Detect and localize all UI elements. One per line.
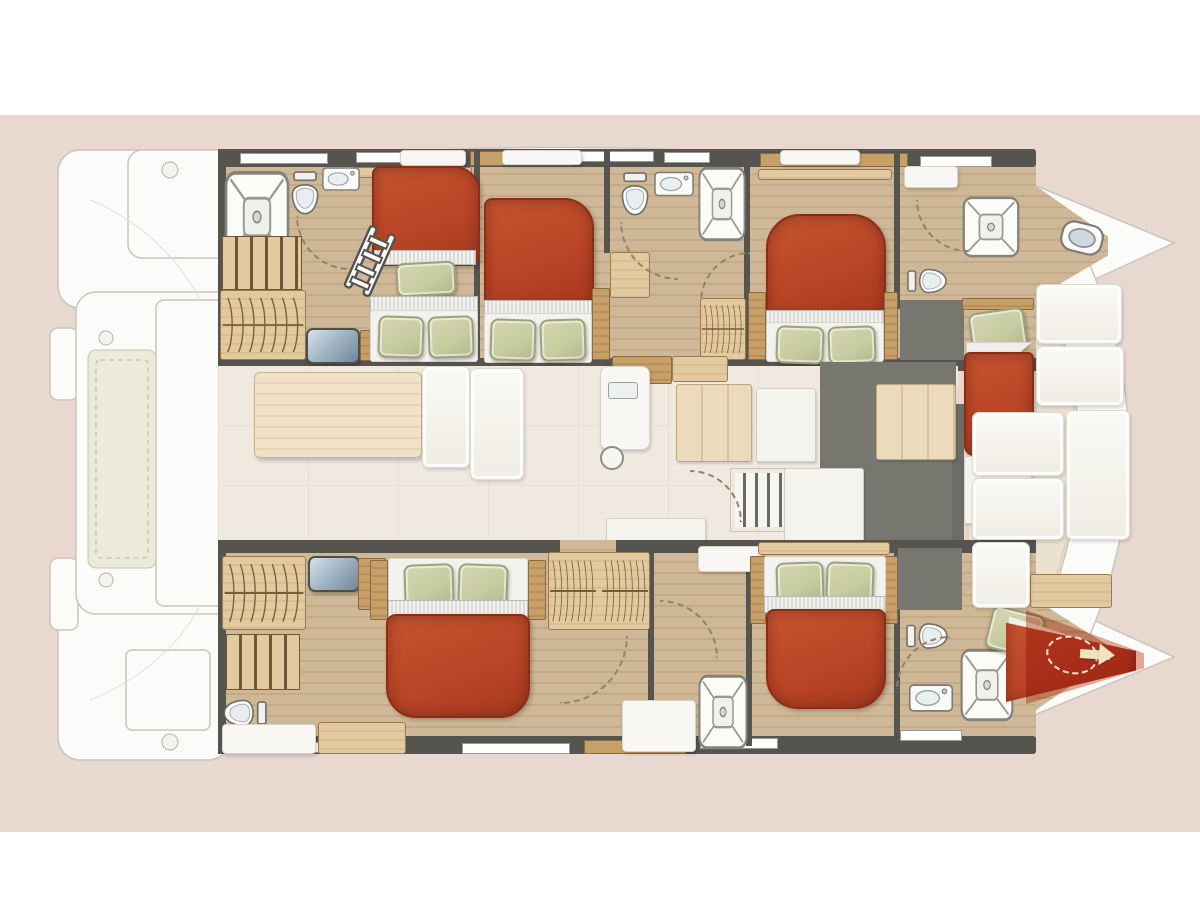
bulkhead bbox=[604, 149, 610, 253]
deck-hatch bbox=[780, 150, 860, 165]
pillow bbox=[377, 315, 424, 359]
staircase bbox=[226, 634, 300, 690]
pillow bbox=[827, 325, 876, 365]
double-bed bbox=[484, 198, 594, 308]
island-sink bbox=[608, 382, 638, 399]
dining-table bbox=[254, 372, 422, 458]
passage-floor bbox=[900, 300, 964, 360]
clothes-hangers bbox=[221, 291, 305, 359]
bench-cushion bbox=[972, 478, 1064, 540]
hull-window bbox=[462, 743, 570, 754]
galley-cabinet bbox=[672, 356, 728, 382]
passage-floor bbox=[898, 548, 962, 610]
berth-headboard bbox=[962, 298, 1034, 310]
clothes-hangers bbox=[701, 299, 745, 359]
double-bed bbox=[766, 609, 886, 709]
nightstand bbox=[748, 292, 766, 360]
sink bbox=[654, 170, 694, 198]
wardrobe bbox=[222, 556, 306, 630]
hull-window bbox=[580, 151, 654, 162]
clothes-hangers bbox=[549, 553, 597, 629]
pillow bbox=[395, 260, 457, 297]
sink bbox=[322, 166, 360, 192]
island-unit bbox=[600, 366, 650, 450]
vanity-counter bbox=[222, 724, 316, 754]
deck-hatch bbox=[502, 150, 582, 165]
shelf bbox=[904, 166, 958, 188]
nightstand bbox=[370, 560, 388, 620]
staircase bbox=[222, 236, 302, 290]
pillow bbox=[539, 318, 586, 362]
pillow bbox=[489, 318, 536, 362]
pillow bbox=[775, 325, 824, 365]
pillow bbox=[427, 315, 474, 359]
wardrobe bbox=[220, 290, 306, 360]
shower bbox=[962, 196, 1020, 258]
double-bed bbox=[766, 214, 886, 318]
cleat bbox=[162, 162, 178, 178]
vanity-counter bbox=[622, 700, 696, 752]
toilet bbox=[907, 265, 949, 297]
owner-double-bed bbox=[386, 614, 530, 718]
vanity-bench bbox=[318, 722, 406, 754]
nightstand bbox=[528, 560, 546, 620]
shower bbox=[960, 648, 1014, 722]
deck-planks bbox=[1030, 574, 1112, 608]
faucet bbox=[600, 446, 624, 470]
tender-platform bbox=[88, 350, 156, 568]
galley-counter bbox=[784, 468, 864, 542]
hull-window bbox=[664, 152, 710, 163]
floorplan-canvas bbox=[0, 0, 1200, 899]
shower bbox=[698, 166, 746, 242]
mirror-console bbox=[308, 556, 360, 592]
shower bbox=[698, 674, 748, 750]
bench-cushion bbox=[972, 542, 1030, 608]
hull-window bbox=[240, 153, 328, 164]
toilet bbox=[618, 172, 652, 218]
galley-counter-wood bbox=[676, 384, 752, 462]
salon-sofa bbox=[470, 368, 524, 480]
clothes-hangers bbox=[601, 553, 649, 629]
wardrobe bbox=[548, 552, 650, 630]
mirror-console bbox=[306, 328, 360, 364]
deck-hatch bbox=[400, 150, 466, 166]
bulkhead bbox=[894, 149, 900, 309]
cleat bbox=[99, 331, 113, 345]
clothes-hangers bbox=[223, 557, 305, 629]
bench-cushion bbox=[1036, 346, 1124, 406]
galley-counter bbox=[756, 388, 816, 462]
wardrobe bbox=[700, 298, 746, 360]
bench-cushion bbox=[972, 412, 1064, 476]
bench-cushion bbox=[1066, 410, 1130, 540]
toilet bbox=[288, 171, 322, 217]
galley-counter-wood bbox=[876, 384, 956, 460]
bench-cushion bbox=[1036, 284, 1122, 344]
cleat bbox=[162, 734, 178, 750]
nightstand bbox=[884, 556, 898, 624]
window-shelf bbox=[758, 169, 892, 180]
nightstand bbox=[592, 288, 610, 360]
nightstand bbox=[884, 292, 898, 360]
hull-window bbox=[900, 730, 962, 741]
cleat bbox=[99, 573, 113, 587]
headboard-shelf bbox=[758, 542, 890, 555]
salon-sofa bbox=[422, 366, 470, 468]
